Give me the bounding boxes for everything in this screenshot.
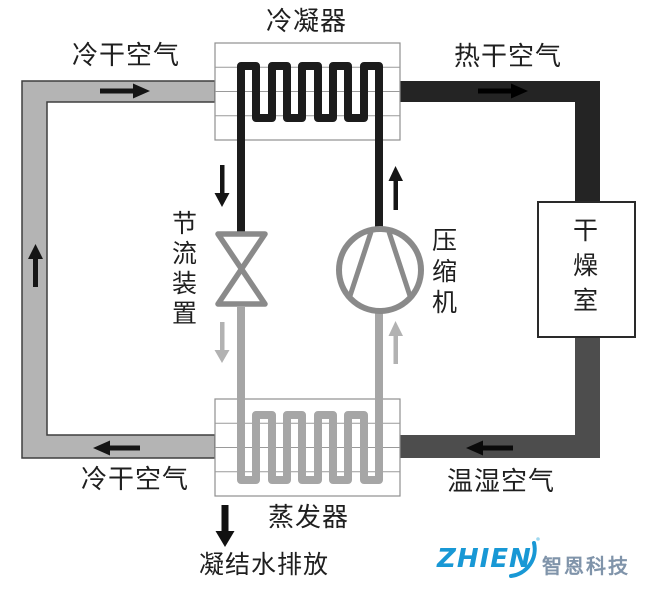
evaporator-label: 蒸发器 bbox=[268, 505, 349, 532]
condenser-label: 冷凝器 bbox=[266, 9, 347, 36]
humid-air-duct bbox=[400, 337, 600, 458]
compressor-label: 压缩机 bbox=[432, 225, 460, 318]
hot-air-duct bbox=[400, 81, 600, 202]
cold-dry-air-top-label: 冷干空气 bbox=[72, 43, 180, 70]
hot-dry-air-label: 热干空气 bbox=[454, 44, 562, 71]
arrow-up-refrigerant-gray-icon bbox=[389, 321, 404, 364]
throttle-device-label: 节流装置 bbox=[172, 209, 200, 329]
compressor-icon bbox=[339, 229, 421, 311]
arrow-down-condensate-icon bbox=[216, 505, 235, 547]
condensate-discharge-label: 凝结水排放 bbox=[199, 552, 329, 578]
warm-humid-air-label: 温湿空气 bbox=[447, 469, 555, 496]
diagram-canvas: 冷凝器 冷干空气 热干空气 节流装置 压缩机 干燥室 冷干空气 温湿空气 蒸发器… bbox=[0, 0, 650, 594]
logo-company-text: 智恩科技 bbox=[542, 550, 630, 579]
logo-brand-text: ZHIEN bbox=[437, 544, 532, 574]
cold-dry-air-bottom-label: 冷干空气 bbox=[81, 467, 189, 494]
arrow-up-refrigerant-black-icon bbox=[389, 166, 404, 210]
logo-dot-icon bbox=[536, 537, 540, 541]
arrow-down-refrigerant-gray-icon bbox=[215, 322, 230, 363]
arrow-down-refrigerant-black-icon bbox=[215, 165, 230, 207]
throttle-valve-icon bbox=[218, 234, 265, 304]
drying-room-label: 干燥室 bbox=[573, 213, 601, 318]
